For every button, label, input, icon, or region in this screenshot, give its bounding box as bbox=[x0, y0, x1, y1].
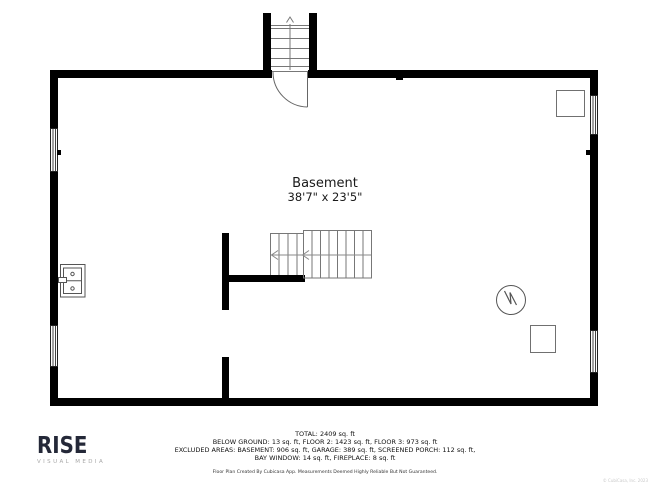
room-dimensions: 38'7" x 23'5" bbox=[230, 191, 420, 204]
utility-sink-icon bbox=[59, 265, 86, 298]
wall-left-middle bbox=[50, 172, 58, 325]
wall-right-upper bbox=[590, 70, 598, 95]
wall-left-upper bbox=[50, 70, 58, 128]
up-arrow-icon bbox=[287, 17, 294, 23]
water-heater-icon bbox=[497, 286, 526, 315]
disclaimer: Floor Plan Created By Cubicasa App. Meas… bbox=[0, 470, 650, 476]
logo-tagline: VISUAL MEDIA bbox=[37, 459, 105, 465]
window-icon bbox=[50, 325, 58, 367]
direction-arrow-icon bbox=[272, 251, 279, 260]
wall-bottom bbox=[50, 398, 598, 406]
wall-top-right bbox=[308, 70, 598, 78]
floor-plan-page: Basement 38'7" x 23'5" TOTAL: 2409 sq. f… bbox=[0, 0, 650, 487]
copyright-note: © CubiCasa, Inc. 2023 bbox=[603, 478, 648, 483]
interior-wall-horizontal bbox=[222, 275, 305, 282]
window-icon bbox=[590, 95, 598, 135]
stairs-up-icon bbox=[271, 17, 309, 72]
window-handle-mark bbox=[57, 150, 61, 155]
wall-mark bbox=[586, 150, 590, 155]
wall-right-middle bbox=[590, 135, 598, 330]
stairwell-wall-left bbox=[263, 13, 271, 70]
direction-arrow-icon bbox=[303, 251, 310, 260]
equipment-square-icon bbox=[531, 326, 556, 353]
wall-top-left bbox=[50, 70, 272, 78]
interior-wall-vertical-upper bbox=[222, 233, 229, 310]
logo-wordmark: RISE bbox=[37, 434, 96, 458]
door-swing-icon bbox=[273, 72, 308, 107]
wall-mark bbox=[396, 77, 403, 80]
interior-stairs-icon bbox=[270, 231, 372, 279]
window-icon bbox=[590, 330, 598, 373]
room-name: Basement bbox=[230, 176, 420, 191]
stairwell-wall-right bbox=[309, 13, 317, 70]
rise-logo: RISE VISUAL MEDIA bbox=[37, 434, 105, 465]
equipment-square-icon bbox=[557, 91, 585, 117]
interior-wall-vertical-lower bbox=[222, 357, 229, 398]
room-label: Basement 38'7" x 23'5" bbox=[230, 176, 420, 204]
faucet-icon bbox=[59, 278, 67, 283]
